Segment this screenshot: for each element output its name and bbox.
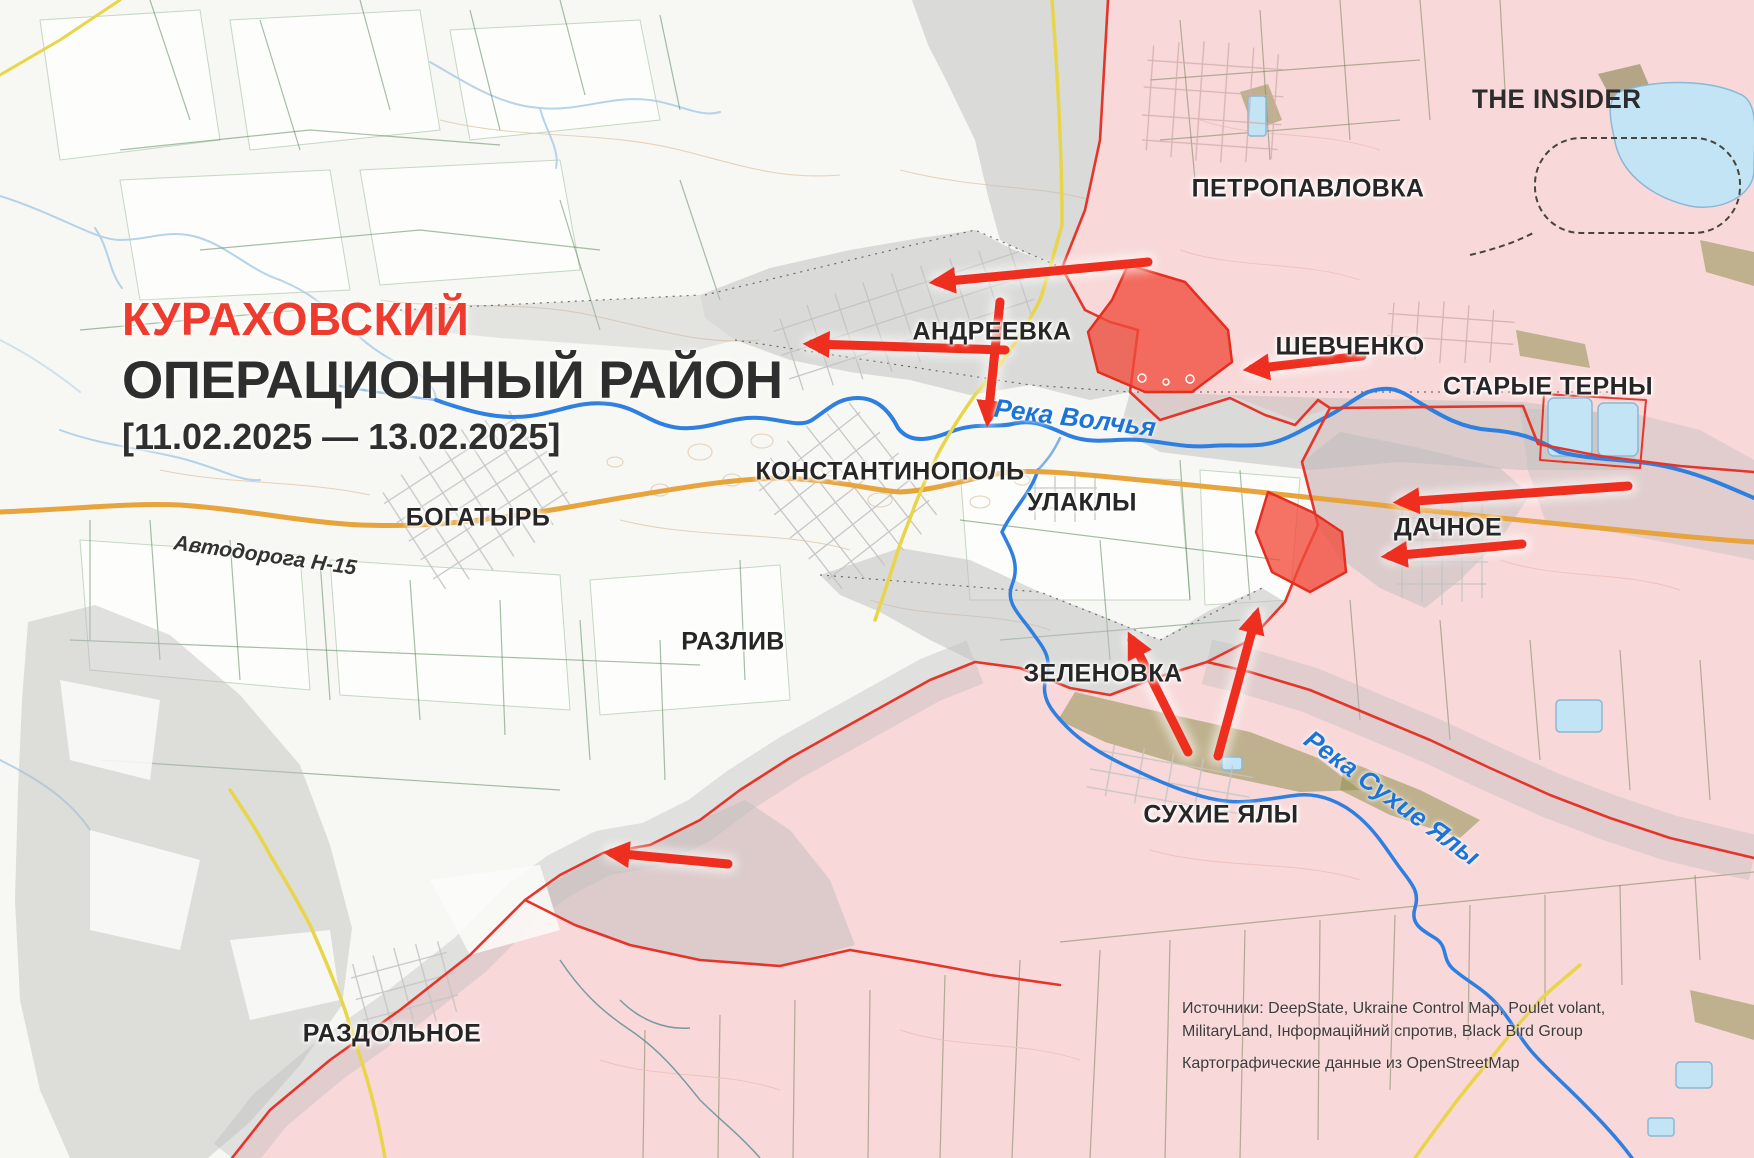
settlement-label-sukhiye-yaly: СУХИЕ ЯЛЫ: [1143, 801, 1298, 830]
settlement-label-bogatyr: БОГАТЫРЬ: [406, 504, 550, 533]
settlement-label-andreevka: АНДРЕЕВКА: [913, 318, 1072, 347]
settlement-label-razdolnoye: РАЗДОЛЬНОЕ: [303, 1020, 482, 1049]
war-map-kurakhove-sector: THE INSIDER КУРАХОВСКИЙ ОПЕРАЦИОННЫЙ РАЙ…: [0, 0, 1754, 1158]
map-title-period: [11.02.2025 — 13.02.2025]: [122, 419, 783, 455]
pond-2: [1598, 403, 1638, 456]
map-title-block: КУРАХОВСКИЙ ОПЕРАЦИОННЫЙ РАЙОН [11.02.20…: [122, 296, 783, 455]
map-canvas: [0, 0, 1754, 1158]
settlement-label-konstantinopol: КОНСТАНТИНОПОЛЬ: [755, 458, 1024, 487]
pond-3: [1556, 700, 1602, 732]
map-title-region: КУРАХОВСКИЙ: [122, 296, 783, 342]
brand-logo: THE INSIDER: [1472, 84, 1641, 115]
settlement-label-staryye-terny: СТАРЫЕ ТЕРНЫ: [1443, 373, 1653, 402]
attribution-sources-line1: Источники: DeepState, Ukraine Control Ma…: [1182, 997, 1605, 1020]
map-title-subtitle: ОПЕРАЦИОННЫЙ РАЙОН: [122, 354, 783, 407]
settlement-label-razliv: РАЗЛИВ: [681, 628, 785, 657]
settlement-label-shevchenko: ШЕВЧЕНКО: [1275, 333, 1424, 362]
settlement-label-zelenovka: ЗЕЛЕНОВКА: [1023, 660, 1182, 689]
attribution-cartography: Картографические данные из OpenStreetMap: [1182, 1052, 1605, 1075]
attribution-block: Источники: DeepState, Ukraine Control Ma…: [1182, 997, 1605, 1075]
attribution-sources-line2: MilitaryLand, Інформаційний спротив, Bla…: [1182, 1020, 1605, 1043]
settlement-label-ulakly: УЛАКЛЫ: [1027, 489, 1137, 518]
settlement-label-dachnoye: ДАЧНОЕ: [1394, 514, 1502, 543]
pond-5: [1676, 1062, 1712, 1088]
pond-7: [1248, 96, 1266, 136]
pond-6: [1648, 1118, 1674, 1136]
settlement-label-petropavlovka: ПЕТРОПАВЛОВКА: [1192, 175, 1425, 204]
